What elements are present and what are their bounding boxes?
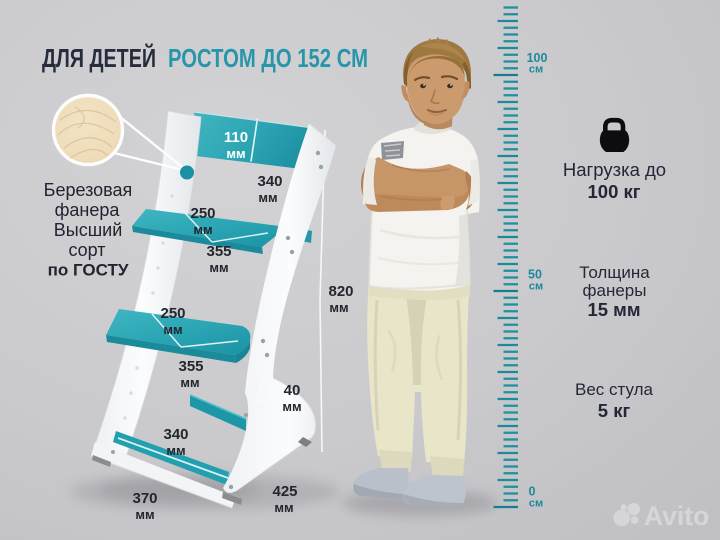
svg-text:370: 370 (132, 490, 157, 507)
svg-text:мм: мм (329, 300, 348, 315)
svg-text:15 мм: 15 мм (587, 299, 640, 320)
svg-text:425: 425 (272, 483, 297, 500)
svg-text:мм: мм (166, 443, 185, 458)
svg-text:250: 250 (160, 305, 185, 322)
svg-text:Avito: Avito (644, 501, 709, 531)
svg-text:40: 40 (284, 382, 301, 399)
svg-text:см: см (529, 64, 543, 76)
svg-text:мм: мм (209, 260, 228, 275)
svg-text:мм: мм (163, 322, 182, 337)
svg-text:РОСТОМ ДО 152 СМ: РОСТОМ ДО 152 СМ (168, 43, 368, 73)
svg-text:50: 50 (528, 268, 542, 282)
svg-text:100 кг: 100 кг (588, 181, 641, 202)
svg-text:мм: мм (258, 190, 277, 205)
svg-text:см: см (529, 498, 543, 510)
svg-text:110: 110 (224, 129, 248, 146)
svg-text:355: 355 (178, 358, 203, 375)
svg-text:ДЛЯ ДЕТЕЙ: ДЛЯ ДЕТЕЙ (42, 43, 156, 73)
svg-text:фанеры: фанеры (583, 281, 647, 300)
svg-text:мм: мм (226, 146, 245, 161)
svg-text:340: 340 (163, 426, 188, 443)
svg-text:Высший: Высший (54, 220, 123, 240)
svg-text:355: 355 (206, 243, 231, 260)
svg-text:820: 820 (328, 283, 353, 300)
svg-text:мм: мм (193, 222, 212, 237)
svg-text:5 кг: 5 кг (598, 400, 631, 421)
svg-text:250: 250 (190, 205, 215, 222)
svg-text:по ГОСТУ: по ГОСТУ (48, 261, 129, 280)
svg-text:фанера: фанера (55, 200, 121, 220)
svg-text:мм: мм (282, 399, 301, 414)
svg-text:мм: мм (180, 375, 199, 390)
svg-text:Толщина: Толщина (579, 263, 650, 282)
svg-text:Нагрузка до: Нагрузка до (563, 159, 666, 180)
svg-text:сорт: сорт (68, 240, 105, 260)
svg-text:мм: мм (274, 500, 293, 515)
svg-text:0: 0 (529, 485, 536, 499)
svg-text:Вес стула: Вес стула (575, 380, 654, 399)
svg-text:см: см (529, 281, 543, 293)
svg-text:мм: мм (135, 507, 154, 522)
svg-text:Березовая: Березовая (44, 180, 133, 200)
svg-text:340: 340 (257, 173, 282, 190)
